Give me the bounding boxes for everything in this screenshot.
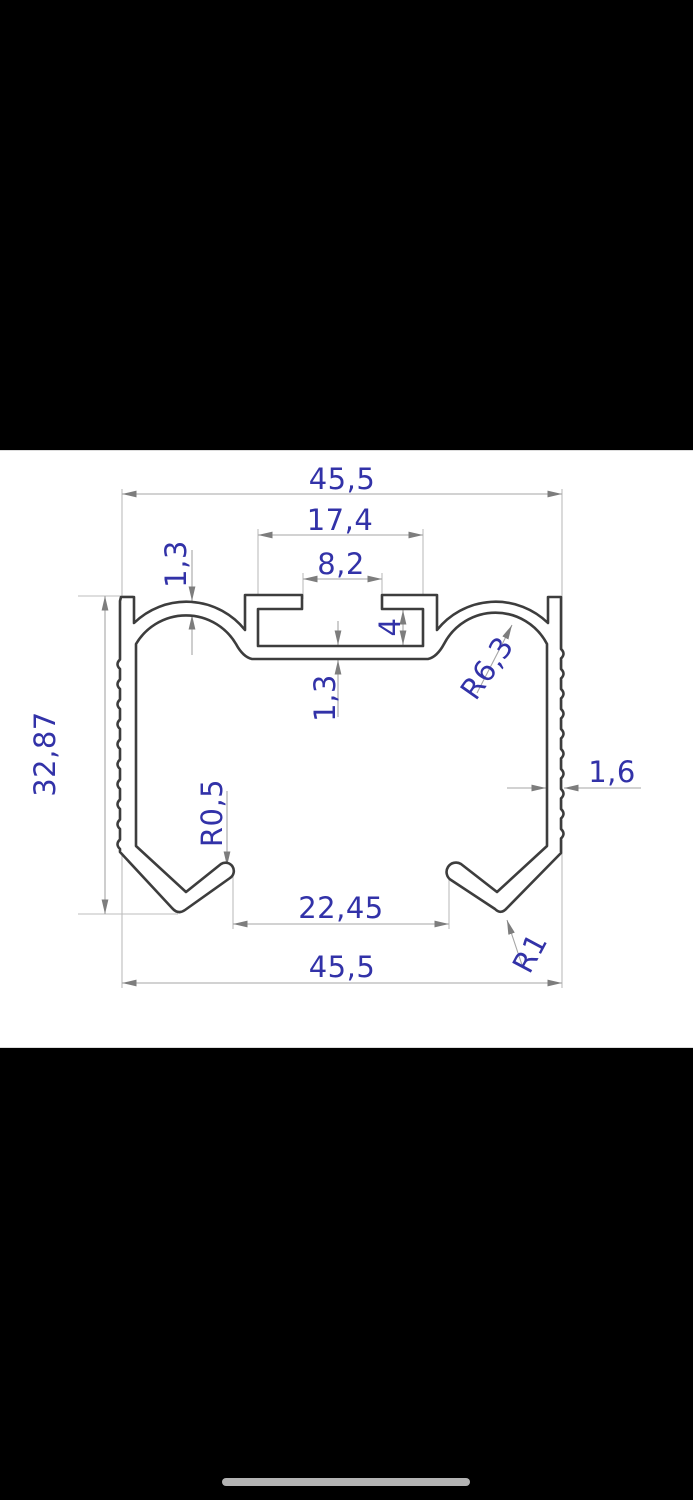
home-indicator[interactable]	[222, 1478, 470, 1486]
leader-lines	[192, 550, 641, 968]
dim-label-hook-tip-radius: R0,5	[195, 779, 229, 847]
dim-label-bottom-opening-width: 22,45	[298, 891, 384, 925]
dim-label-dome-wall-thickness: 1,3	[159, 540, 193, 588]
dim-label-overall-height: 32,87	[28, 711, 62, 797]
dim-label-slot-cavity-width: 17,4	[307, 503, 374, 537]
drawing-canvas: 45,5 17,4 8,2 1,3 4 1,3 R6,3 1,6 R0,5 22…	[0, 450, 693, 1048]
bottom-letterbox	[0, 1048, 693, 1500]
dim-label-slot-floor-thickness: 1,3	[308, 674, 342, 722]
dim-label-hook-bend-radius: R1	[506, 928, 555, 979]
dim-label-side-wall-thickness: 1,6	[588, 755, 636, 789]
profile-drawing-svg: 45,5 17,4 8,2 1,3 4 1,3 R6,3 1,6 R0,5 22…	[0, 451, 693, 1049]
dim-label-slot-opening-width: 8,2	[317, 547, 365, 581]
dim-label-dome-radius: R6,3	[453, 630, 520, 705]
phone-screenshot: { "screen": { "background": "#000000", "…	[0, 0, 693, 1500]
dim-label-slot-depth: 4	[373, 618, 407, 637]
dim-label-overall-width-top: 45,5	[309, 462, 376, 496]
top-letterbox	[0, 0, 693, 450]
dim-label-overall-width-bottom: 45,5	[309, 950, 376, 984]
